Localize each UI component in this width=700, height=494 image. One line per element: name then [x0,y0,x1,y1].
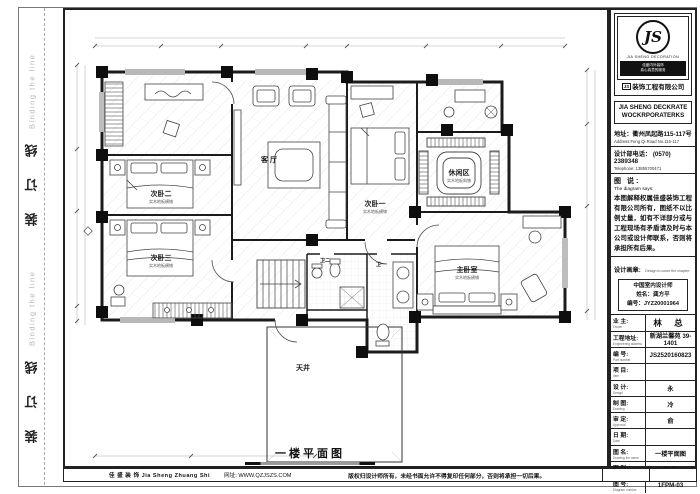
binding-label-cn: 装 订 线 [23,352,42,443]
row-owner-label-en: Owner [613,325,643,329]
row-drawing-name-value: 一楼平面图 [646,446,695,461]
footer-copyright: 版权归设计师所有，未经书面允许不得复印任何部分，否则将承担一切后果。 [291,471,602,480]
row-design-label: 设 计: [613,382,643,391]
room-label-master: 主卧室 [457,265,478,274]
company-en-line2: WOCKRPORATERKS [615,112,691,121]
footer-cell-2 [649,469,696,481]
row-item-value [646,364,695,379]
logo-tagline: 佳盛内外装饰 真心真意的服务 [620,61,686,76]
title-block: JS JIA SHENG DECORATION 佳盛内外装饰 真心真意的服务 J… [609,8,697,468]
footer-strip: 佳 盛 装 饰 Jia Sheng Zhuang Shi 网址: WWW.QZJ… [63,468,697,482]
logo-tagline-2: 真心真意的服务 [621,68,685,73]
company-name-en: JIA SHENG DECKRATE WOCKRPORATERKS [614,101,692,124]
binding-label-en: Binding the line [28,54,37,129]
room-label-bedroom2: 次卧二 [151,189,172,198]
room-label-bedroom1: 次卧一 [365,199,386,208]
title-rows: 业 主:Owner 林 总 工程地址:Engineering address 新… [611,315,695,493]
company-logo-icon: JS [636,20,670,54]
phone-block: 设计部电话： (0570) 2389348 Telephone: 1385570… [611,147,695,174]
row-number-label: 编 号: [613,349,643,358]
room-label-leisure: 休闲区 [448,168,470,177]
company-name-cn: JS装饰工程有限公司 [617,80,689,93]
plan-caption: 一楼平面图 [245,445,375,467]
company-prefix-icon: JS [622,83,632,90]
room-note-bedroom2: 实木地板横铺 [149,198,173,204]
company-name-cn-text: 装饰工程有限公司 [632,84,684,91]
row-date-label: 日 期: [613,430,643,439]
row-project-address-label-en: Engineering address [613,342,643,346]
diagram-says-label-cn: 图 说: [614,176,692,186]
phone-en: Telephone: 13855700471 [614,166,692,171]
row-design: 设 计:Design 永 [611,381,695,397]
row-approve: 审 定:Approval 俞 [611,413,695,429]
row-draft-label: 制 图: [613,398,643,407]
diagram-says-label-en: The diagram says: [614,187,692,192]
floor-plan-frame: 天井 [63,8,609,468]
room-note-bedroom1: 实木地板横铺 [363,208,387,214]
footer-cell-1 [602,469,649,481]
row-project-address-value: 新湖兰馨苑 39-1401 [646,332,695,347]
row-approve-value: 俞 [646,413,695,428]
binding-label-bottom: 装 订 线 Binding the line [20,252,44,462]
row-draft-label-en: Drawing [613,407,643,411]
seal-line1: 中国室内设计师 [619,282,687,291]
company-en-line1: JIA SHENG DECKRATE [615,104,691,113]
room-label-bedroom3: 次卧三 [151,253,172,262]
logo-inner: JS JIA SHENG DECORATION 佳盛内外装饰 真心真意的服务 [617,16,689,80]
room-note-master: 实木地板横铺 [455,274,479,280]
row-design-label-en: Design [613,391,643,395]
row-project-address: 工程地址:Engineering address 新湖兰馨苑 39-1401 [611,332,695,348]
seal-line3: 编号：JYZ20001964 [619,300,687,309]
logo-subtext: JIA SHENG DECORATION [620,55,686,59]
address-en: Address:Feng Qi Road No.115-117 [614,139,692,144]
room-label-bath1: 卫一 [376,261,386,268]
diagram-says-body: 本图解释权属佳盛装饰工程有限公司所有，图纸不以比例丈量，如有不详部分或与工程现场… [614,194,692,254]
designer-seal-block: 设计画章: Design to cover the chapter: 中国室内设… [611,257,695,316]
row-drawing-number-label-en: Diagram number [613,488,643,492]
row-item-label: 项 目: [613,365,643,374]
row-drawing-name-label-en: Drawing the name [613,456,643,460]
row-date-value [646,429,695,444]
room-label-bath2: 卫二 [320,257,330,264]
footer-website: 网址: WWW.QZJSZS.COM [224,471,291,479]
row-number: 编 号:Part number JS2520160823 [611,348,695,364]
address-cn: 地址：衢州凤起路115-117号 [614,129,692,138]
row-project-address-label: 工程地址: [613,333,643,342]
room-label-living: 客 厅 [260,155,277,164]
address-block: 地址：衢州凤起路115-117号 Address:Feng Qi Road No… [611,127,695,147]
seal-label-cn: 设计画章: [614,267,641,274]
seal-line2: 姓名：龚方平 [619,291,687,300]
phone-cn: 设计部电话： (0570) 2389348 [614,149,692,165]
diagram-says-block: 图 说: The diagram says: 本图解释权属佳盛装饰工程有限公司所… [611,174,695,257]
binding-dashed-line [44,8,45,485]
plan-caption-text: 一楼平面图 [245,445,375,461]
caption-scale-bar [245,462,375,465]
seal-label-en: Design to cover the chapter: [645,269,690,273]
binding-label-en: Binding the line [28,271,37,346]
binding-label-top: 装 订 线 Binding the line [20,42,44,238]
row-approve-label-en: Approval [613,423,643,427]
row-owner-value: 林 总 [646,315,695,330]
row-date-label-en: Date [613,439,643,443]
row-number-label-en: Part number [613,358,643,362]
binding-label-cn: 装 订 线 [23,135,42,226]
room-label-courtyard: 天井 [296,363,310,372]
row-date: 日 期:Date [611,429,695,445]
room-note-bedroom3: 实木地板横铺 [149,262,173,268]
row-owner-label: 业 主: [613,316,643,325]
logo-section: JS JIA SHENG DECORATION 佳盛内外装饰 真心真意的服务 J… [614,13,692,96]
row-item-label-en: Item [613,374,643,378]
row-drawing-name: 图 名:Drawing the name 一楼平面图 [611,446,695,462]
caption-underline [245,466,375,467]
floor-plan-svg: 天井 [65,10,607,466]
designer-seal: 中国室内设计师 姓名：龚方平 编号：JYZ20001964 [618,279,688,312]
row-owner: 业 主:Owner 林 总 [611,315,695,331]
room-note-leisure: 实木地板斜铺 [447,177,471,183]
row-draft: 制 图:Drawing 冷 [611,397,695,413]
footer-company: 佳 盛 装 饰 Jia Sheng Zhuang Shi [109,471,210,479]
row-draft-value: 冷 [646,397,695,412]
row-number-value: JS2520160823 [646,348,695,363]
row-approve-label: 审 定: [613,414,643,423]
row-item: 项 目:Item [611,364,695,380]
row-design-value: 永 [646,381,695,396]
drawing-sheet: 装 订 线 Binding the line 装 订 线 Binding the… [0,0,700,494]
row-drawing-name-label: 图 名: [613,447,643,456]
